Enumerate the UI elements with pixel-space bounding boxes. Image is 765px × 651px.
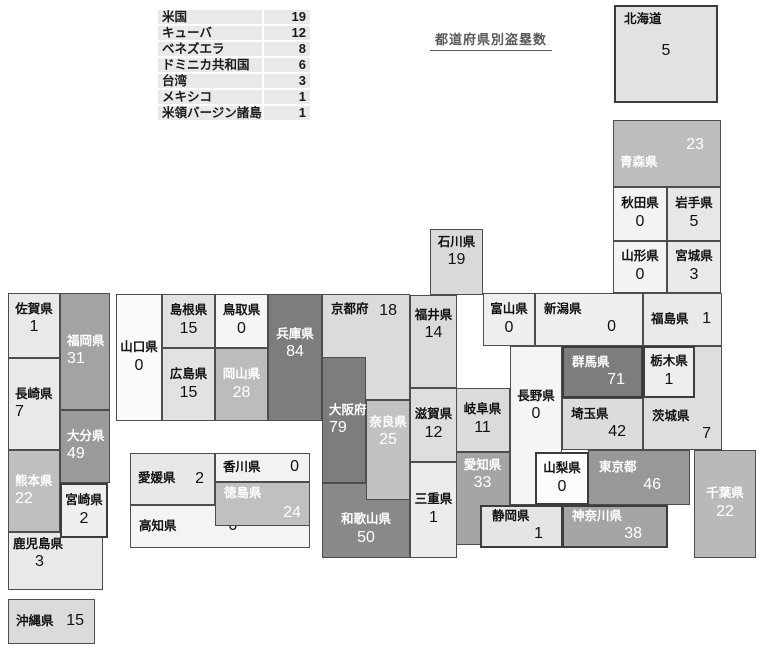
prefecture-tile-miyagi: 宮城県3 bbox=[667, 241, 721, 293]
country-label: ベネズエラ bbox=[158, 42, 262, 56]
prefecture-tile-tokushima: 徳島県24 bbox=[215, 482, 310, 526]
prefecture-value: 22 bbox=[716, 503, 734, 521]
prefecture-label: 香川県 bbox=[223, 460, 261, 476]
prefecture-tile-kumamoto: 熊本県22 bbox=[8, 450, 60, 532]
prefecture-label: 大分県 bbox=[67, 429, 105, 445]
prefecture-tile-kagoshima: 鹿児島県3 bbox=[8, 532, 103, 590]
prefecture-tile-tochigi: 栃木県1 bbox=[643, 346, 695, 398]
prefecture-value: 31 bbox=[67, 350, 85, 368]
prefecture-tile-yamaguchi: 山口県0 bbox=[116, 294, 162, 421]
prefecture-label: 福島県 bbox=[651, 312, 689, 328]
prefecture-tile-miyazaki: 宮崎県2 bbox=[60, 483, 108, 538]
prefecture-tile-gunma: 群馬県71 bbox=[562, 346, 643, 398]
prefecture-value: 18 bbox=[379, 302, 397, 320]
prefecture-tile-kagawa: 香川県0 bbox=[215, 453, 310, 482]
prefecture-label: 岡山県 bbox=[223, 367, 261, 383]
prefecture-value: 1 bbox=[429, 509, 438, 527]
prefecture-value: 7 bbox=[702, 425, 711, 443]
country-value: 12 bbox=[262, 26, 310, 40]
country-label: ドミニカ共和国 bbox=[158, 58, 262, 72]
prefecture-value: 38 bbox=[624, 525, 642, 543]
prefecture-label: 徳島県 bbox=[224, 486, 262, 502]
prefecture-label: 大阪府 bbox=[329, 403, 367, 419]
country-value: 6 bbox=[262, 58, 310, 72]
prefecture-tile-iwate: 岩手県5 bbox=[667, 187, 721, 241]
prefecture-label: 神奈川県 bbox=[572, 509, 622, 525]
prefecture-value: 46 bbox=[643, 476, 661, 494]
prefecture-value: 0 bbox=[290, 458, 299, 476]
country-label: 米領バージン諸島 bbox=[158, 106, 262, 120]
prefecture-label: 長崎県 bbox=[15, 387, 53, 403]
prefecture-tile-mie: 三重県1 bbox=[410, 462, 457, 558]
country-row: メキシコ1 bbox=[158, 90, 310, 104]
prefecture-value: 0 bbox=[532, 405, 541, 423]
prefecture-tile-shiga: 滋賀県12 bbox=[410, 388, 457, 462]
prefecture-tile-hyogo: 兵庫県84 bbox=[268, 294, 322, 421]
prefecture-value: 79 bbox=[329, 419, 347, 437]
prefecture-label: 山梨県 bbox=[543, 461, 581, 477]
prefecture-value: 0 bbox=[607, 318, 616, 336]
prefecture-value: 28 bbox=[233, 384, 251, 402]
prefecture-tile-yamanashi: 山梨県0 bbox=[535, 452, 589, 505]
prefecture-label: 宮城県 bbox=[675, 249, 713, 265]
prefecture-value: 15 bbox=[180, 320, 198, 338]
prefecture-tile-fukushima: 福島県1 bbox=[643, 293, 722, 346]
country-value: 8 bbox=[262, 42, 310, 56]
prefecture-label: 奈良県 bbox=[369, 415, 407, 431]
prefecture-tile-hokkaido: 北海道5 bbox=[614, 5, 718, 103]
prefecture-value: 23 bbox=[686, 136, 704, 154]
prefecture-label: 新潟県 bbox=[544, 302, 582, 318]
prefecture-value: 11 bbox=[474, 419, 491, 437]
prefecture-label: 広島県 bbox=[170, 367, 208, 383]
prefecture-tile-aomori: 23青森県 bbox=[613, 120, 721, 187]
prefecture-label: 埼玉県 bbox=[571, 407, 609, 423]
prefecture-label: 宮崎県 bbox=[65, 493, 103, 509]
prefecture-value: 5 bbox=[690, 213, 699, 231]
country-value: 3 bbox=[262, 74, 310, 88]
prefecture-tile-nara: 奈良県25 bbox=[366, 400, 410, 500]
prefecture-value: 1 bbox=[30, 318, 39, 336]
country-row: ベネズエラ8 bbox=[158, 42, 310, 56]
prefecture-label: 佐賀県 bbox=[15, 302, 53, 318]
prefecture-value: 2 bbox=[80, 510, 89, 528]
prefecture-tile-kanagawa: 神奈川県38 bbox=[562, 505, 668, 548]
prefecture-value: 3 bbox=[35, 553, 44, 571]
prefecture-label: 鳥取県 bbox=[223, 303, 261, 319]
prefecture-value: 1 bbox=[702, 310, 711, 328]
prefecture-value: 0 bbox=[636, 266, 645, 284]
prefecture-label: 岩手県 bbox=[675, 196, 713, 212]
prefecture-value: 0 bbox=[135, 357, 144, 375]
prefecture-tile-hiroshima: 広島県15 bbox=[162, 348, 215, 421]
prefecture-label: 静岡県 bbox=[492, 509, 530, 525]
prefecture-value: 15 bbox=[66, 612, 84, 630]
prefecture-tile-gifu: 岐阜県11 bbox=[455, 388, 510, 452]
country-row: 台湾3 bbox=[158, 74, 310, 88]
country-row: 米国19 bbox=[158, 10, 310, 24]
prefecture-label: 島根県 bbox=[170, 303, 208, 319]
prefecture-label: 石川県 bbox=[438, 235, 476, 251]
prefecture-label: 青森県 bbox=[620, 155, 658, 171]
prefecture-value: 1 bbox=[665, 371, 674, 389]
prefecture-label: 山形県 bbox=[621, 249, 659, 265]
prefecture-label: 福井県 bbox=[415, 308, 453, 324]
country-value: 19 bbox=[262, 10, 310, 24]
prefecture-tile-tokyo: 東京都46 bbox=[588, 450, 690, 505]
prefecture-tile-akita: 秋田県0 bbox=[613, 187, 667, 241]
prefecture-value: 19 bbox=[448, 251, 466, 269]
prefecture-value: 71 bbox=[607, 371, 625, 389]
prefecture-label: 長野県 bbox=[517, 389, 555, 405]
prefecture-value: 42 bbox=[608, 423, 626, 441]
prefecture-label: 愛媛県 bbox=[138, 471, 176, 487]
country-row: ドミニカ共和国6 bbox=[158, 58, 310, 72]
prefecture-label: 北海道 bbox=[624, 12, 662, 28]
prefecture-label: 山口県 bbox=[120, 340, 158, 356]
prefecture-label: 群馬県 bbox=[572, 355, 610, 371]
prefecture-label: 栃木県 bbox=[650, 354, 688, 370]
country-label: メキシコ bbox=[158, 90, 262, 104]
prefecture-label: 秋田県 bbox=[621, 196, 659, 212]
country-value: 1 bbox=[262, 90, 310, 104]
country-label: 台湾 bbox=[158, 74, 262, 88]
prefecture-value: 22 bbox=[15, 490, 33, 508]
prefecture-tile-fukuoka: 福岡県31 bbox=[60, 293, 110, 410]
prefecture-tile-nagasaki: 長崎県7 bbox=[8, 358, 60, 450]
tile-map: 都道府県別盗塁数 米国19キューバ12ベネズエラ8ドミニカ共和国6台湾3メキシコ… bbox=[0, 0, 765, 651]
prefecture-value: 24 bbox=[283, 504, 301, 522]
foreign-country-table: 米国19キューバ12ベネズエラ8ドミニカ共和国6台湾3メキシコ1米領バージン諸島… bbox=[158, 10, 310, 122]
prefecture-value: 50 bbox=[357, 529, 375, 547]
prefecture-label: 三重県 bbox=[415, 492, 453, 508]
prefecture-label: 高知県 bbox=[139, 519, 177, 535]
prefecture-label: 千葉県 bbox=[706, 486, 744, 502]
prefecture-value: 5 bbox=[662, 42, 671, 60]
country-value: 1 bbox=[262, 106, 310, 120]
prefecture-value: 2 bbox=[195, 470, 204, 488]
prefecture-value: 14 bbox=[425, 324, 443, 342]
prefecture-value: 49 bbox=[67, 445, 85, 463]
prefecture-label: 岐阜県 bbox=[464, 402, 502, 418]
prefecture-value: 0 bbox=[505, 319, 514, 337]
prefecture-value: 84 bbox=[286, 343, 304, 361]
prefecture-tile-oita: 大分県49 bbox=[60, 410, 110, 483]
prefecture-label: 茨城県 bbox=[652, 409, 690, 425]
country-row: キューバ12 bbox=[158, 26, 310, 40]
prefecture-label: 滋賀県 bbox=[415, 407, 453, 423]
prefecture-tile-osaka: 大阪府79 bbox=[322, 357, 366, 483]
prefecture-tile-niigata: 新潟県0 bbox=[535, 293, 643, 346]
prefecture-tile-saitama: 埼玉県42 bbox=[562, 398, 643, 450]
prefecture-value: 12 bbox=[425, 424, 443, 442]
prefecture-tile-ehime: 愛媛県2 bbox=[130, 453, 215, 505]
prefecture-tile-chiba: 千葉県22 bbox=[694, 450, 756, 558]
prefecture-tile-fukui: 福井県14 bbox=[410, 295, 457, 388]
prefecture-label: 京都府 bbox=[331, 302, 369, 318]
prefecture-tile-tottori: 鳥取県0 bbox=[215, 294, 268, 348]
prefecture-tile-toyama: 富山県0 bbox=[483, 293, 535, 346]
prefecture-value: 0 bbox=[237, 320, 246, 338]
map-title: 都道府県別盗塁数 bbox=[430, 29, 552, 51]
prefecture-label: 愛知県 bbox=[464, 458, 502, 474]
prefecture-tile-shimane: 島根県15 bbox=[162, 294, 215, 348]
prefecture-label: 沖縄県 bbox=[16, 614, 54, 630]
country-label: キューバ bbox=[158, 26, 262, 40]
prefecture-value: 7 bbox=[15, 403, 24, 421]
prefecture-tile-ishikawa: 石川県19 bbox=[430, 229, 483, 295]
prefecture-tile-saga: 佐賀県1 bbox=[8, 293, 60, 358]
country-label: 米国 bbox=[158, 10, 262, 24]
prefecture-tile-okayama: 岡山県28 bbox=[215, 348, 268, 421]
prefecture-tile-okinawa: 沖縄県15 bbox=[8, 599, 95, 644]
prefecture-value: 15 bbox=[180, 384, 198, 402]
prefecture-value: 0 bbox=[558, 478, 567, 496]
prefecture-label: 熊本県 bbox=[15, 474, 53, 490]
prefecture-label: 鹿児島県 bbox=[13, 537, 63, 553]
prefecture-tile-yamagata: 山形県0 bbox=[613, 241, 667, 293]
prefecture-label: 福岡県 bbox=[67, 334, 105, 350]
prefecture-label: 富山県 bbox=[490, 302, 528, 318]
prefecture-tile-shizuoka: 静岡県1 bbox=[480, 505, 563, 548]
prefecture-label: 和歌山県 bbox=[341, 512, 391, 528]
country-row: 米領バージン諸島1 bbox=[158, 106, 310, 120]
prefecture-label: 兵庫県 bbox=[276, 327, 314, 343]
prefecture-value: 25 bbox=[379, 431, 397, 449]
prefecture-value: 0 bbox=[636, 213, 645, 231]
prefecture-value: 1 bbox=[534, 525, 543, 543]
prefecture-value: 3 bbox=[690, 266, 699, 284]
prefecture-label: 東京都 bbox=[599, 460, 637, 476]
prefecture-value: 33 bbox=[474, 474, 492, 492]
